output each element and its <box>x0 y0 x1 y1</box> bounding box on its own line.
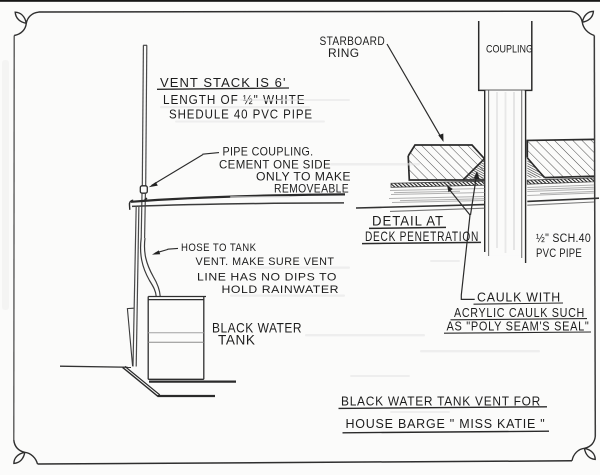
svg-text:HOLD RAINWATER: HOLD RAINWATER <box>222 284 340 296</box>
svg-text:RING: RING <box>328 46 360 60</box>
svg-text:REMOVEABLE: REMOVEABLE <box>274 182 349 196</box>
svg-text:BLACK WATER TANK VENT FOR: BLACK WATER TANK VENT FOR <box>341 393 541 408</box>
svg-text:AS "POLY SEAM'S SEAL": AS "POLY SEAM'S SEAL" <box>447 319 590 333</box>
svg-text:COUPLING: COUPLING <box>486 44 533 56</box>
svg-text:PIPE COUPLING.: PIPE COUPLING. <box>223 145 314 159</box>
svg-text:DECK PENETRATION: DECK PENETRATION <box>365 228 479 244</box>
svg-text:DETAIL AT: DETAIL AT <box>372 213 444 229</box>
svg-text:CAULK WITH: CAULK WITH <box>477 291 561 305</box>
svg-text:TANK: TANK <box>218 332 256 348</box>
svg-text:SHEDULE 40 PVC PIPE: SHEDULE 40 PVC PIPE <box>169 108 313 122</box>
svg-text:LINE HAS NO DIPS TO: LINE HAS NO DIPS TO <box>197 272 337 284</box>
svg-text:½" SCH.40: ½" SCH.40 <box>536 233 591 245</box>
svg-text:PVC PIPE: PVC PIPE <box>536 248 582 260</box>
svg-text:HOSE TO TANK: HOSE TO TANK <box>181 242 257 254</box>
svg-text:HOUSE BARGE " MISS KATIE ": HOUSE BARGE " MISS KATIE " <box>346 416 546 431</box>
svg-text:ACRYLIC CAULK SUCH: ACRYLIC CAULK SUCH <box>454 306 585 320</box>
svg-text:VENT. MAKE SURE VENT: VENT. MAKE SURE VENT <box>196 256 335 268</box>
